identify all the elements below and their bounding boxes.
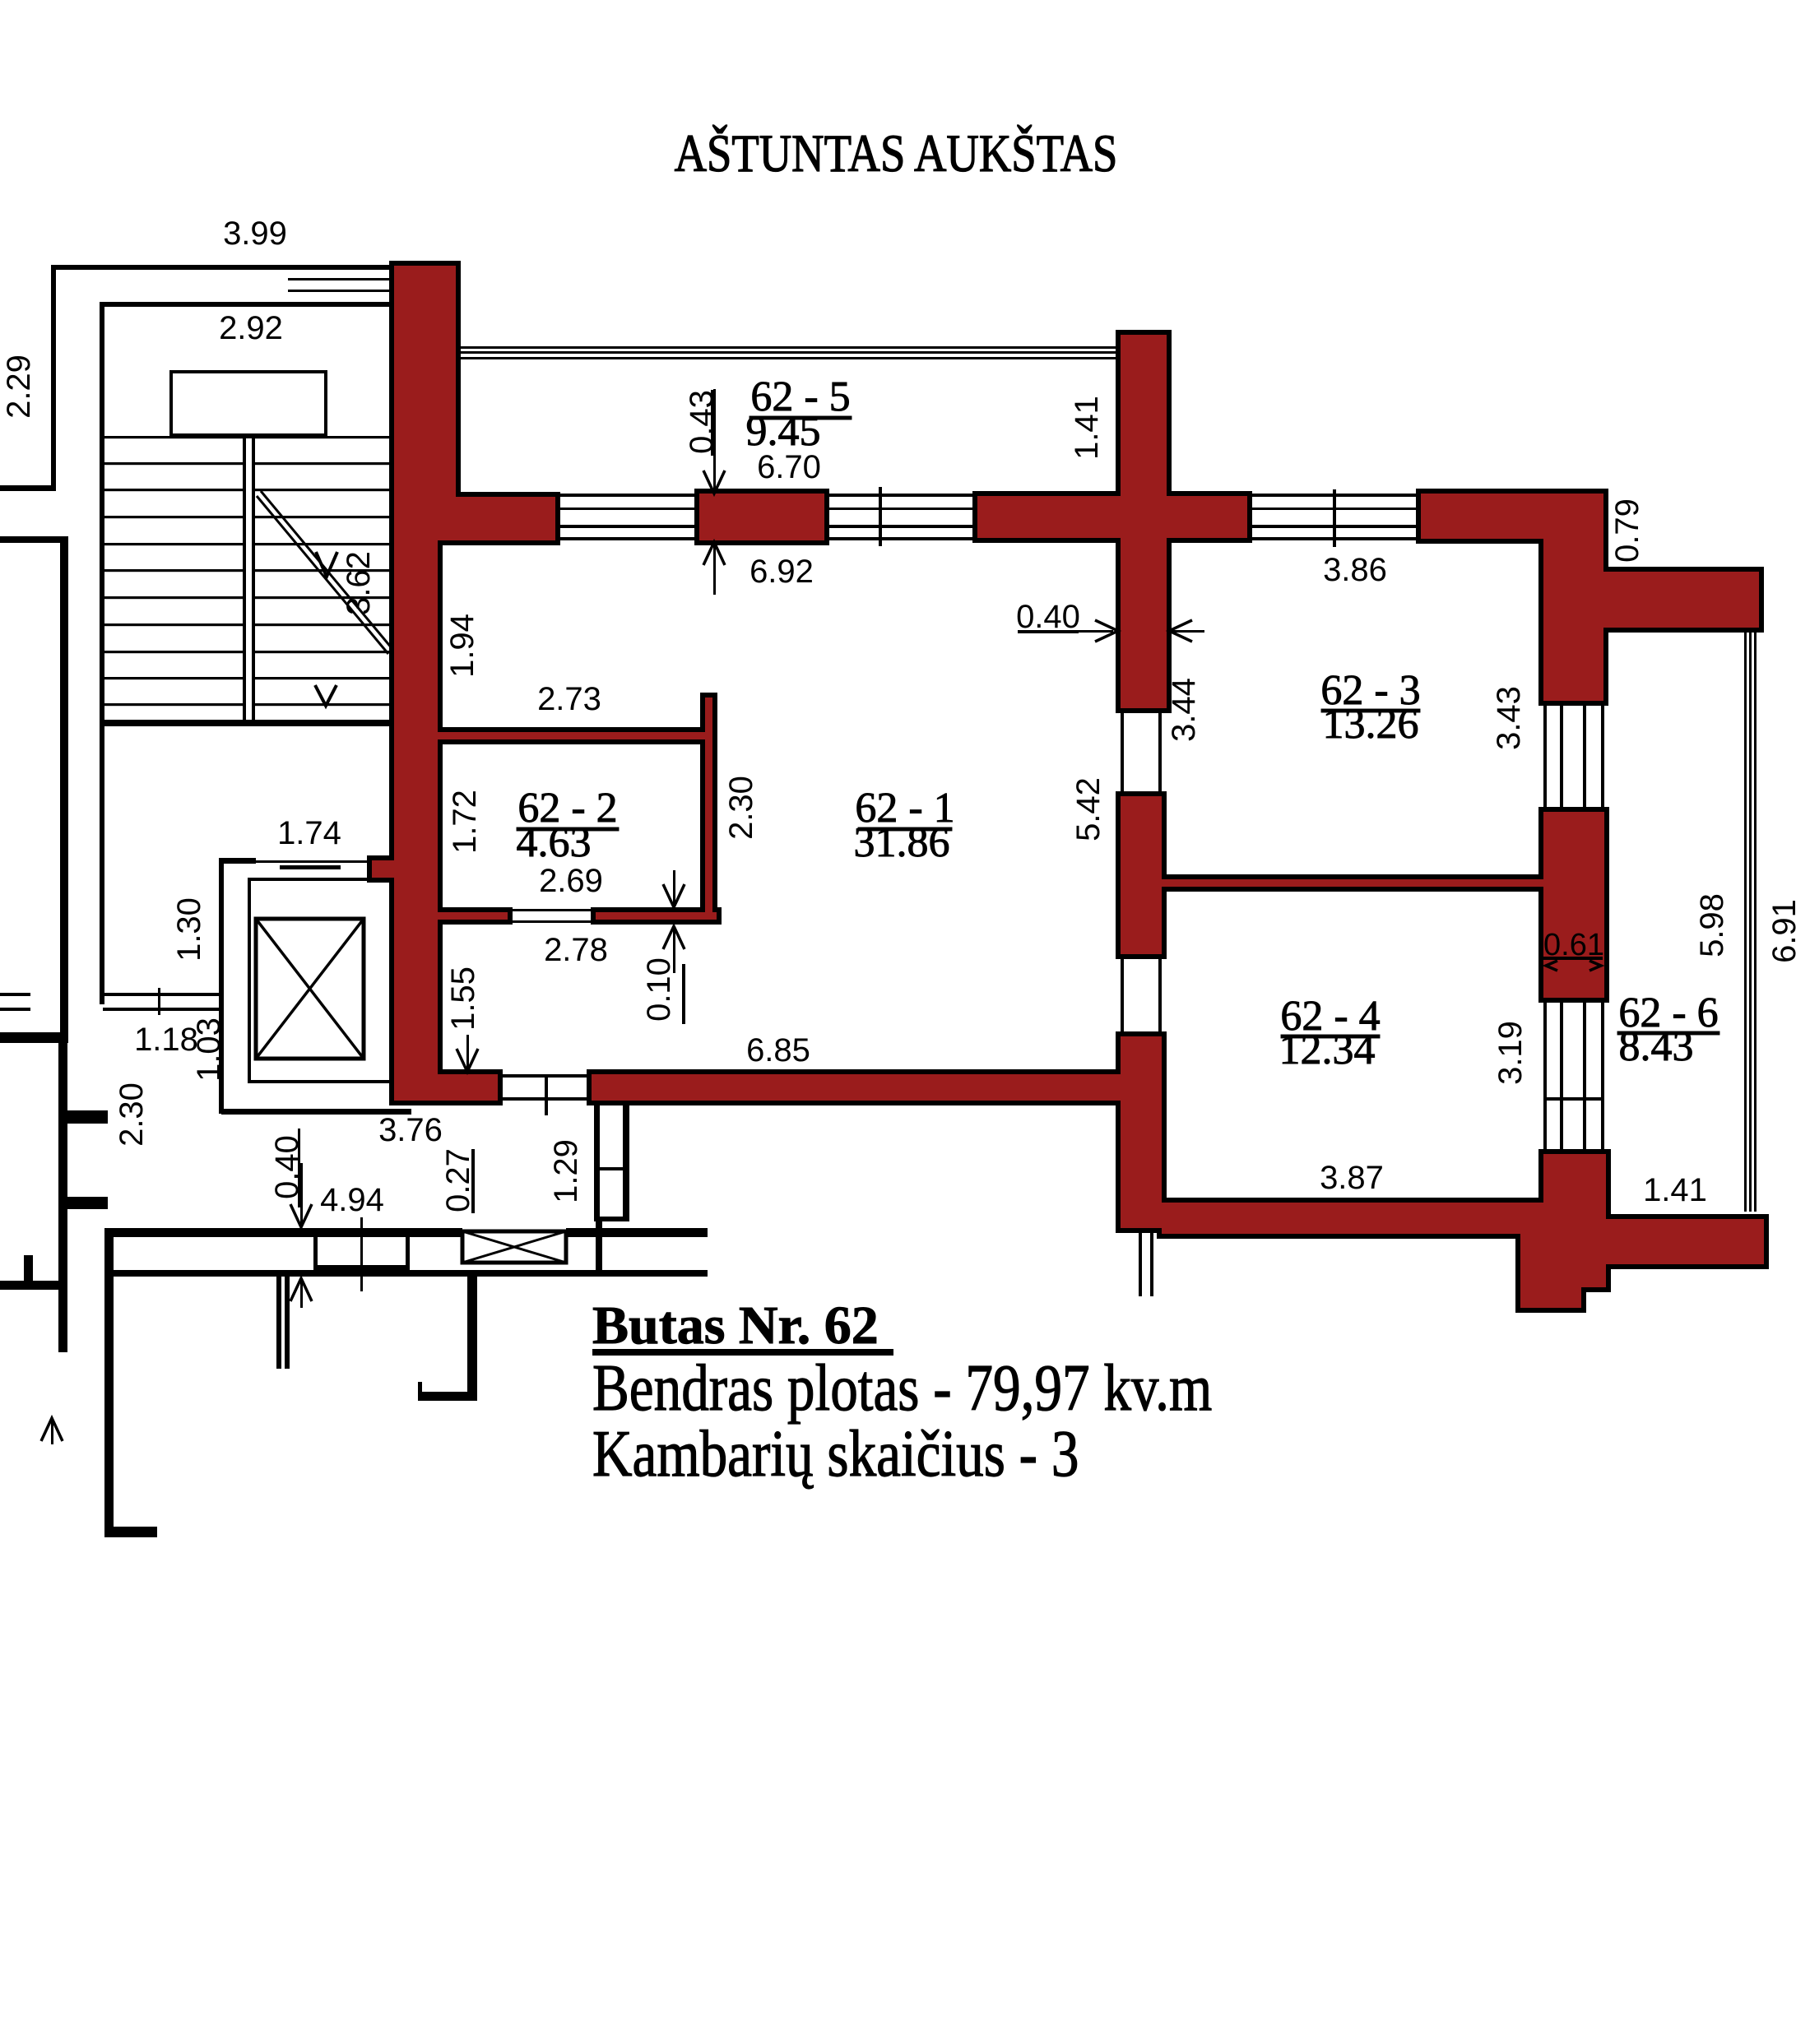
svg-text:3.86: 3.86	[1323, 552, 1387, 588]
svg-text:5.42: 5.42	[1070, 777, 1107, 841]
svg-text:0.43: 0.43	[684, 390, 720, 454]
svg-text:1.03: 1.03	[191, 1017, 227, 1082]
svg-text:2.30: 2.30	[114, 1082, 150, 1147]
svg-text:2.73: 2.73	[537, 681, 601, 717]
svg-text:12.34: 12.34	[1279, 1027, 1376, 1073]
svg-text:3.99: 3.99	[223, 216, 287, 252]
svg-text:4.94: 4.94	[320, 1182, 384, 1218]
svg-text:1.29: 1.29	[548, 1139, 584, 1203]
svg-text:2.29: 2.29	[1, 355, 37, 419]
svg-text:1.41: 1.41	[1069, 396, 1105, 460]
svg-text:31.86: 31.86	[854, 819, 950, 866]
svg-text:6.91: 6.91	[1766, 899, 1796, 963]
svg-text:3.43: 3.43	[1491, 686, 1527, 750]
svg-text:1.72: 1.72	[447, 790, 483, 854]
svg-text:8.43: 8.43	[1619, 1023, 1694, 1070]
svg-text:0.40: 0.40	[269, 1135, 305, 1199]
svg-text:Kambarių skaičius - 3: Kambarių skaičius - 3	[592, 1417, 1079, 1490]
svg-text:0.10: 0.10	[641, 957, 677, 1022]
svg-text:Butas Nr. 62: Butas Nr. 62	[592, 1295, 879, 1356]
svg-text:3.87: 3.87	[1320, 1160, 1384, 1196]
svg-text:4.63: 4.63	[517, 819, 592, 866]
svg-text:2.92: 2.92	[219, 310, 283, 346]
svg-text:0.27: 0.27	[440, 1148, 476, 1212]
svg-text:1.41: 1.41	[1643, 1172, 1707, 1208]
svg-text:Bendras plotas - 79,97 kv.m: Bendras plotas - 79,97 kv.m	[592, 1351, 1212, 1425]
svg-text:2.78: 2.78	[544, 932, 608, 968]
svg-text:13.26: 13.26	[1323, 701, 1419, 748]
svg-text:1.55: 1.55	[445, 966, 481, 1031]
svg-text:9.45: 9.45	[746, 408, 821, 455]
svg-text:3.62: 3.62	[341, 551, 377, 615]
svg-text:6.92: 6.92	[749, 554, 814, 590]
svg-text:AŠTUNTAS AUKŠTAS: AŠTUNTAS AUKŠTAS	[675, 124, 1118, 183]
svg-text:1.18: 1.18	[134, 1022, 198, 1058]
svg-text:3.44: 3.44	[1166, 678, 1202, 742]
svg-text:2.30: 2.30	[723, 776, 759, 840]
svg-text:5.98: 5.98	[1694, 893, 1730, 957]
svg-text:0.61: 0.61	[1543, 928, 1604, 962]
svg-text:0.40: 0.40	[1016, 599, 1080, 635]
svg-text:0.79: 0.79	[1609, 498, 1645, 563]
svg-text:1.30: 1.30	[171, 897, 207, 962]
svg-text:1.94: 1.94	[444, 614, 480, 678]
svg-text:1.74: 1.74	[277, 815, 341, 851]
svg-text:2.69: 2.69	[539, 863, 603, 899]
svg-text:3.76: 3.76	[378, 1112, 443, 1148]
svg-text:3.19: 3.19	[1492, 1021, 1529, 1085]
svg-text:6.85: 6.85	[746, 1032, 810, 1068]
